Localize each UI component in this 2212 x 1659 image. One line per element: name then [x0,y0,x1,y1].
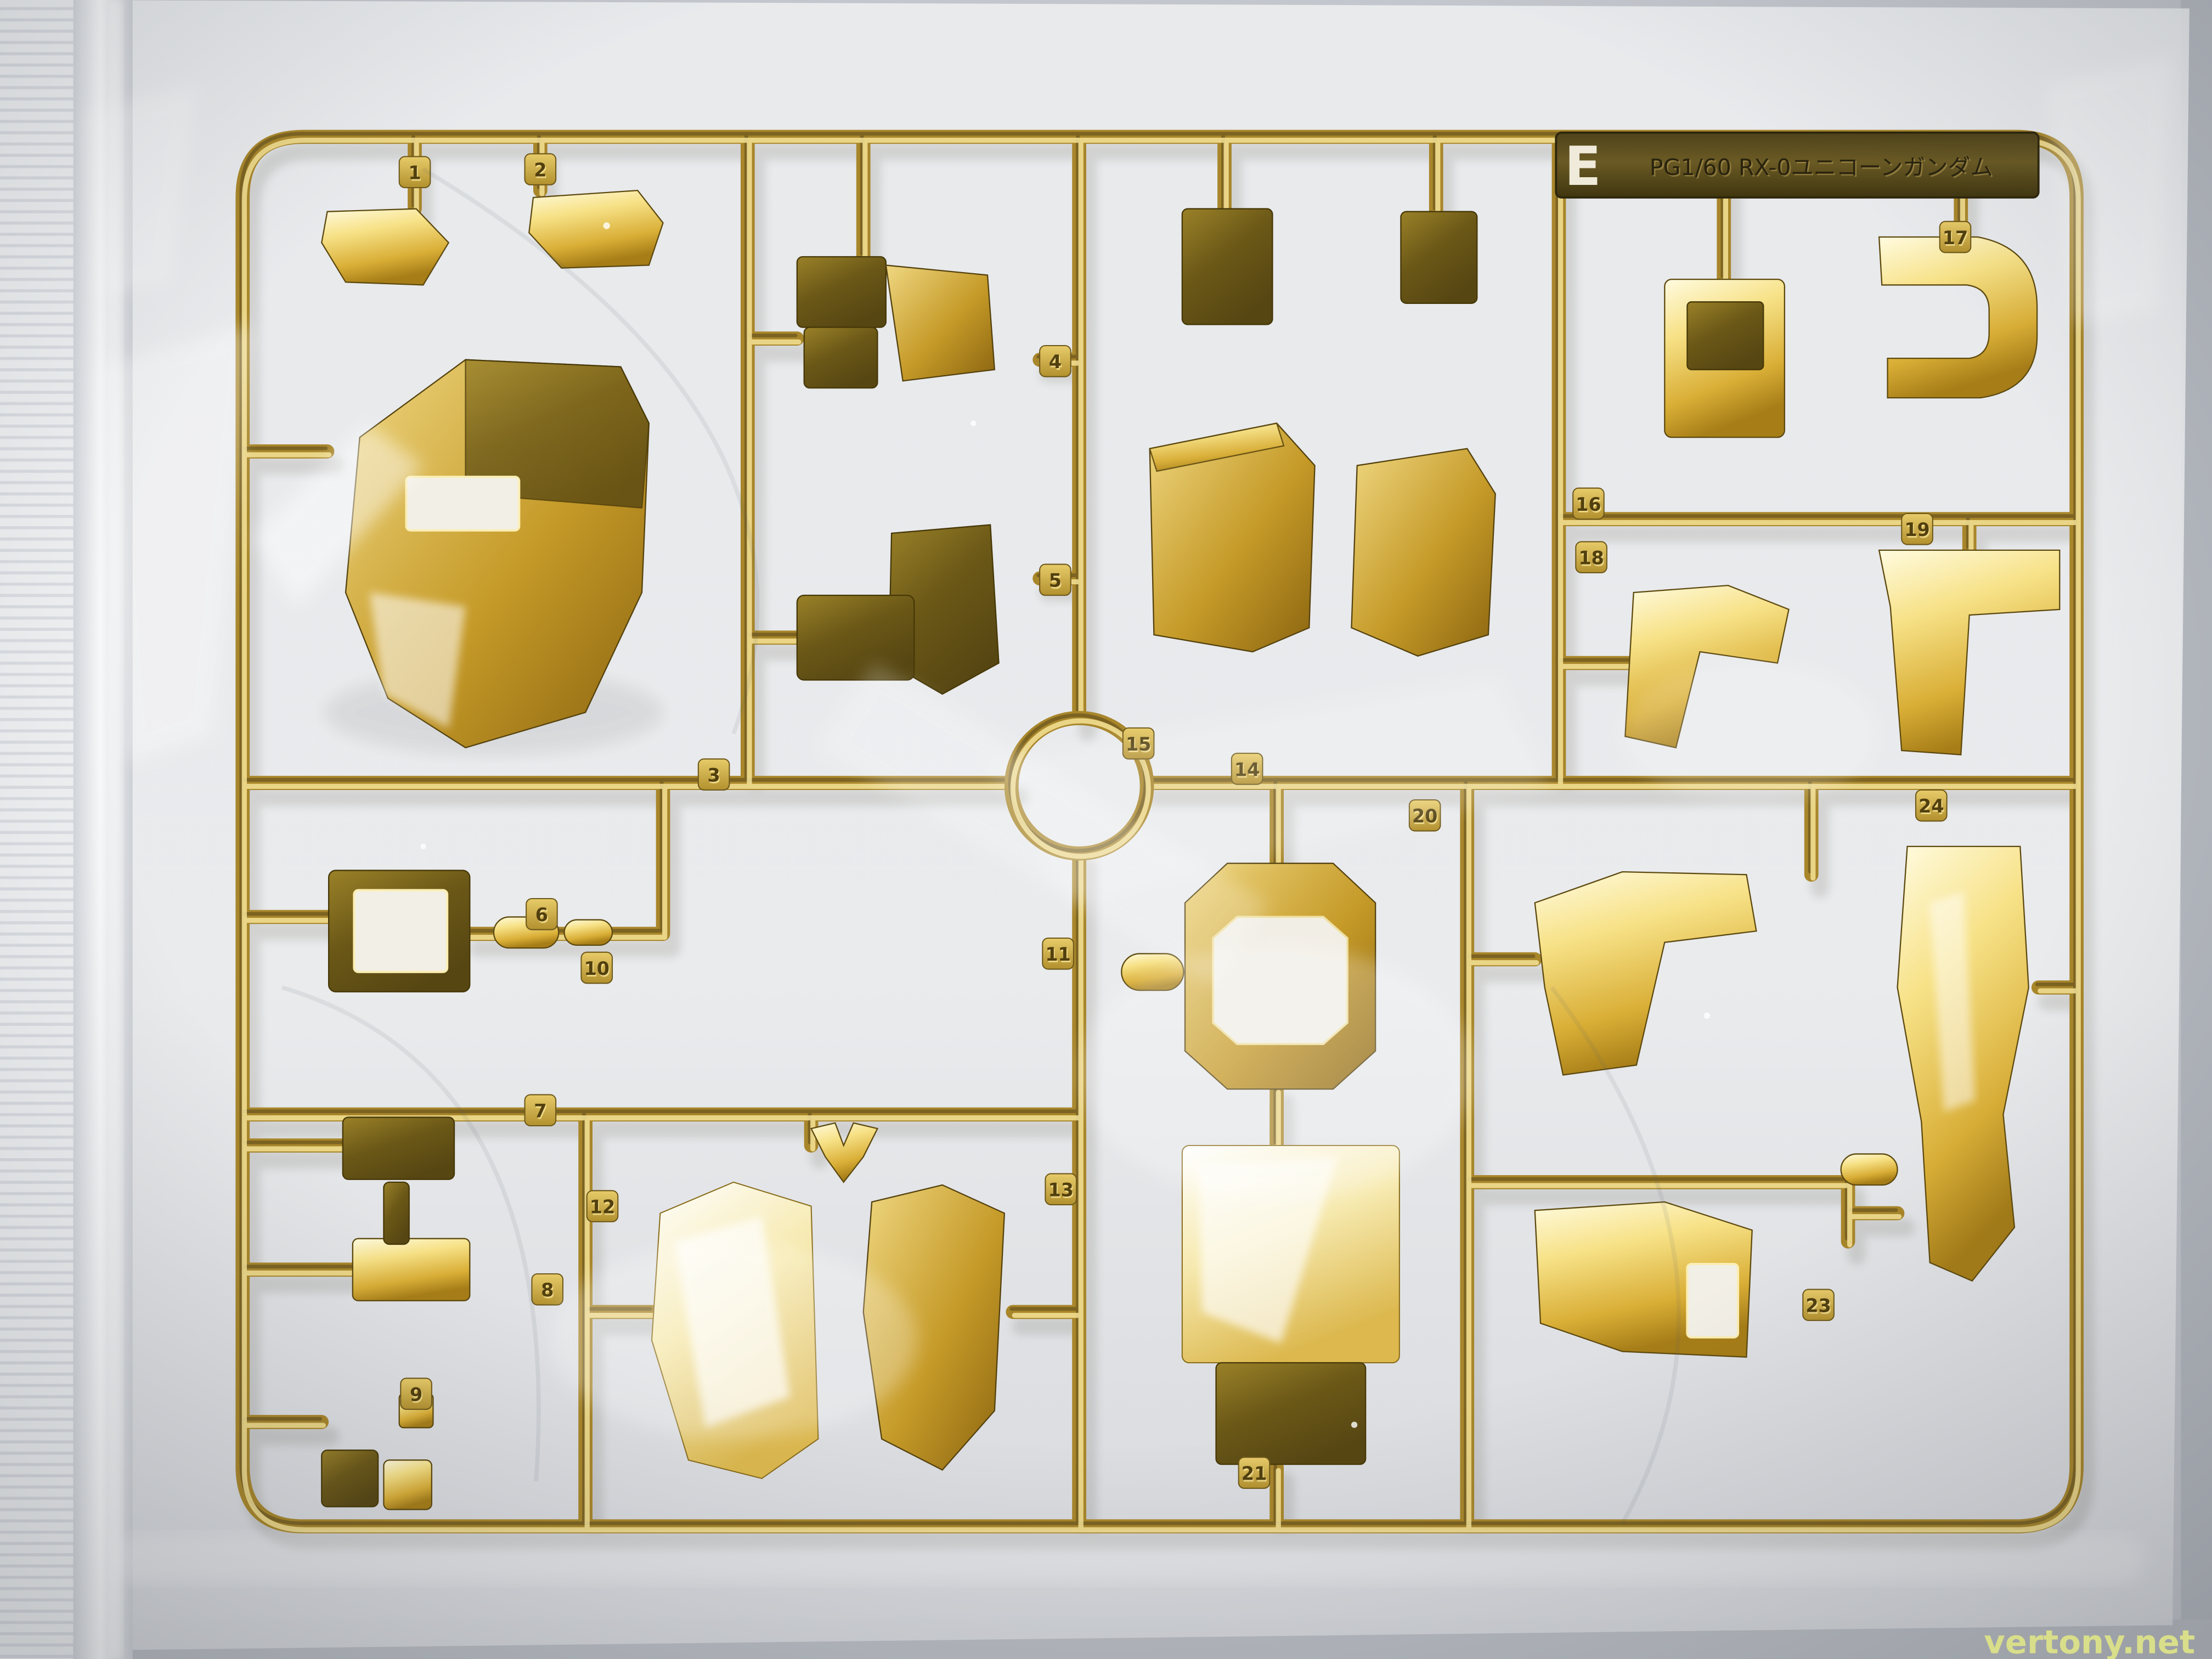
watermark: vertony.net [1984,1623,2195,1659]
photo-gold-runner-in-bag: 1122334455667788991010111112121313141415… [0,0,2212,1659]
photo-vignette [0,0,2212,1659]
photo-canvas: 1122334455667788991010111112121313141415… [0,0,2212,1659]
